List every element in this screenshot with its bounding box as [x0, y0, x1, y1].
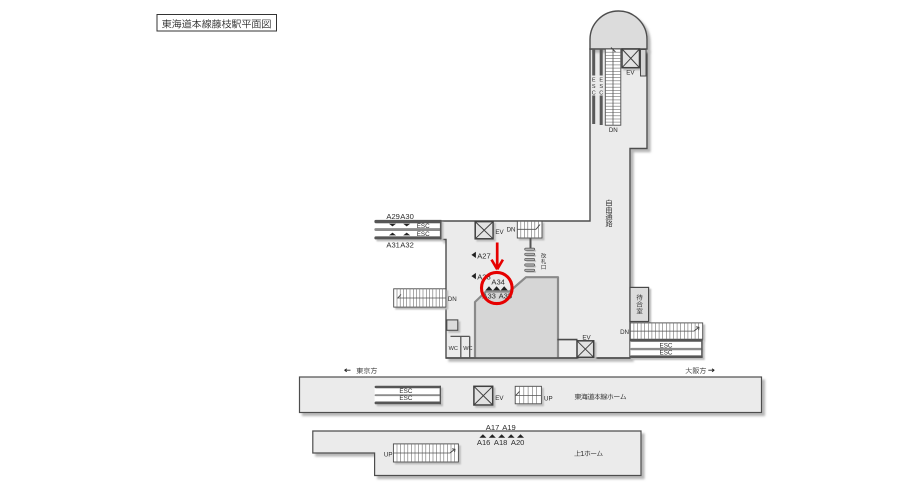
svg-text:E: E [599, 78, 603, 84]
svg-text:ESC: ESC [660, 342, 673, 349]
svg-text:A19: A19 [502, 423, 516, 432]
svg-text:ESC: ESC [399, 395, 412, 402]
svg-text:C: C [592, 91, 596, 97]
svg-text:DN: DN [620, 329, 629, 336]
svg-text:A30: A30 [400, 212, 414, 221]
svg-text:UP: UP [384, 451, 393, 458]
svg-text:A20: A20 [511, 438, 525, 447]
svg-text:A29: A29 [386, 212, 400, 221]
svg-text:A34: A34 [491, 277, 505, 286]
svg-text:UP: UP [544, 395, 553, 402]
svg-text:C: C [599, 91, 603, 97]
svg-text:S: S [599, 84, 603, 90]
svg-text:DN: DN [507, 227, 516, 234]
svg-text:EV: EV [495, 229, 504, 236]
svg-text:ESC: ESC [417, 231, 430, 238]
svg-text:S: S [592, 84, 596, 90]
svg-text:A31: A31 [386, 241, 400, 250]
svg-text:WC: WC [449, 346, 458, 352]
svg-text:A27: A27 [477, 251, 491, 260]
svg-text:A32: A32 [400, 241, 414, 250]
svg-text:ESC: ESC [417, 223, 430, 230]
svg-text:A18: A18 [494, 438, 508, 447]
svg-text:ESC: ESC [660, 350, 673, 357]
svg-text:DN: DN [609, 127, 618, 134]
svg-text:WC: WC [463, 346, 472, 352]
svg-text:A16: A16 [477, 438, 491, 447]
svg-text:EV: EV [495, 395, 504, 402]
svg-text:A17: A17 [486, 423, 500, 432]
svg-text:E: E [592, 78, 596, 84]
svg-text:DN: DN [448, 296, 457, 303]
svg-text:EV: EV [626, 70, 635, 77]
